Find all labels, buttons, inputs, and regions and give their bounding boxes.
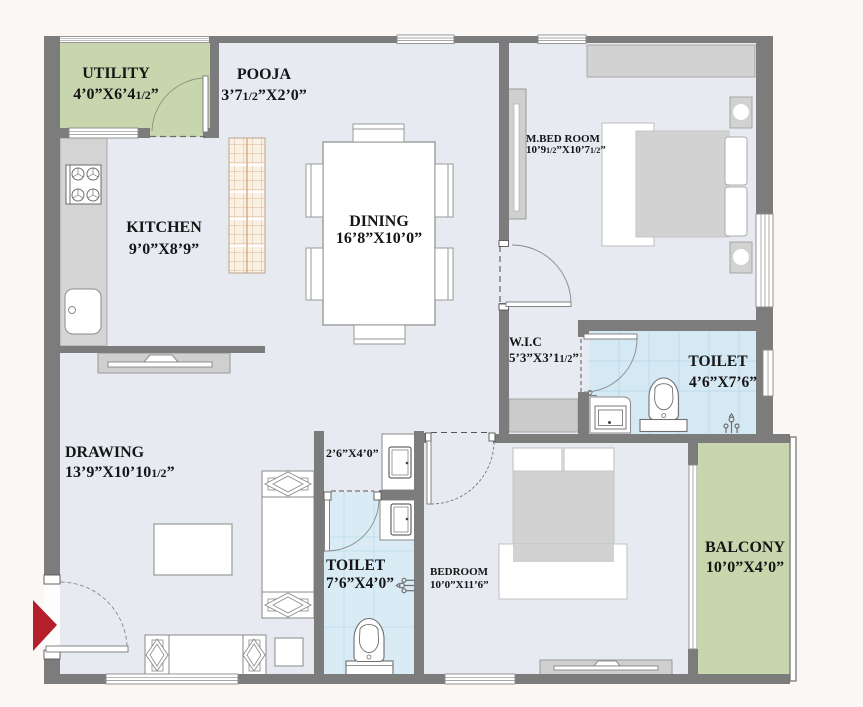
svg-text:BALCONY: BALCONY [705, 539, 785, 556]
svg-text:10’91/2”X10’71/2”: 10’91/2”X10’71/2” [526, 144, 606, 156]
svg-text:13’9”X10’101/2”: 13’9”X10’101/2” [65, 464, 175, 481]
svg-text:W.I.C: W.I.C [509, 334, 542, 349]
svg-text:16’8”X10’0”: 16’8”X10’0” [336, 230, 422, 247]
svg-text:4’6”X7’6”: 4’6”X7’6” [689, 374, 757, 391]
svg-text:POOJA: POOJA [237, 66, 292, 83]
svg-text:3’71/2”X2’0”: 3’71/2”X2’0” [221, 87, 307, 104]
svg-text:BEDROOM: BEDROOM [430, 566, 489, 578]
svg-text:TOILET: TOILET [326, 557, 386, 574]
svg-text:UTILITY: UTILITY [82, 65, 150, 82]
svg-text:10’0”X4’0”: 10’0”X4’0” [706, 559, 784, 576]
svg-text:4’0”X6’41/2”: 4’0”X6’41/2” [73, 86, 159, 103]
svg-text:9’0”X8’9”: 9’0”X8’9” [129, 241, 199, 258]
svg-text:DRAWING: DRAWING [65, 444, 145, 461]
svg-text:10’0”X11’6”: 10’0”X11’6” [430, 579, 489, 591]
svg-text:KITCHEN: KITCHEN [126, 219, 202, 236]
svg-text:2’6”X4’0”: 2’6”X4’0” [326, 446, 379, 460]
svg-text:DINING: DINING [349, 213, 409, 230]
svg-text:TOILET: TOILET [688, 353, 748, 370]
svg-text:7’6”X4’0”: 7’6”X4’0” [326, 575, 394, 592]
